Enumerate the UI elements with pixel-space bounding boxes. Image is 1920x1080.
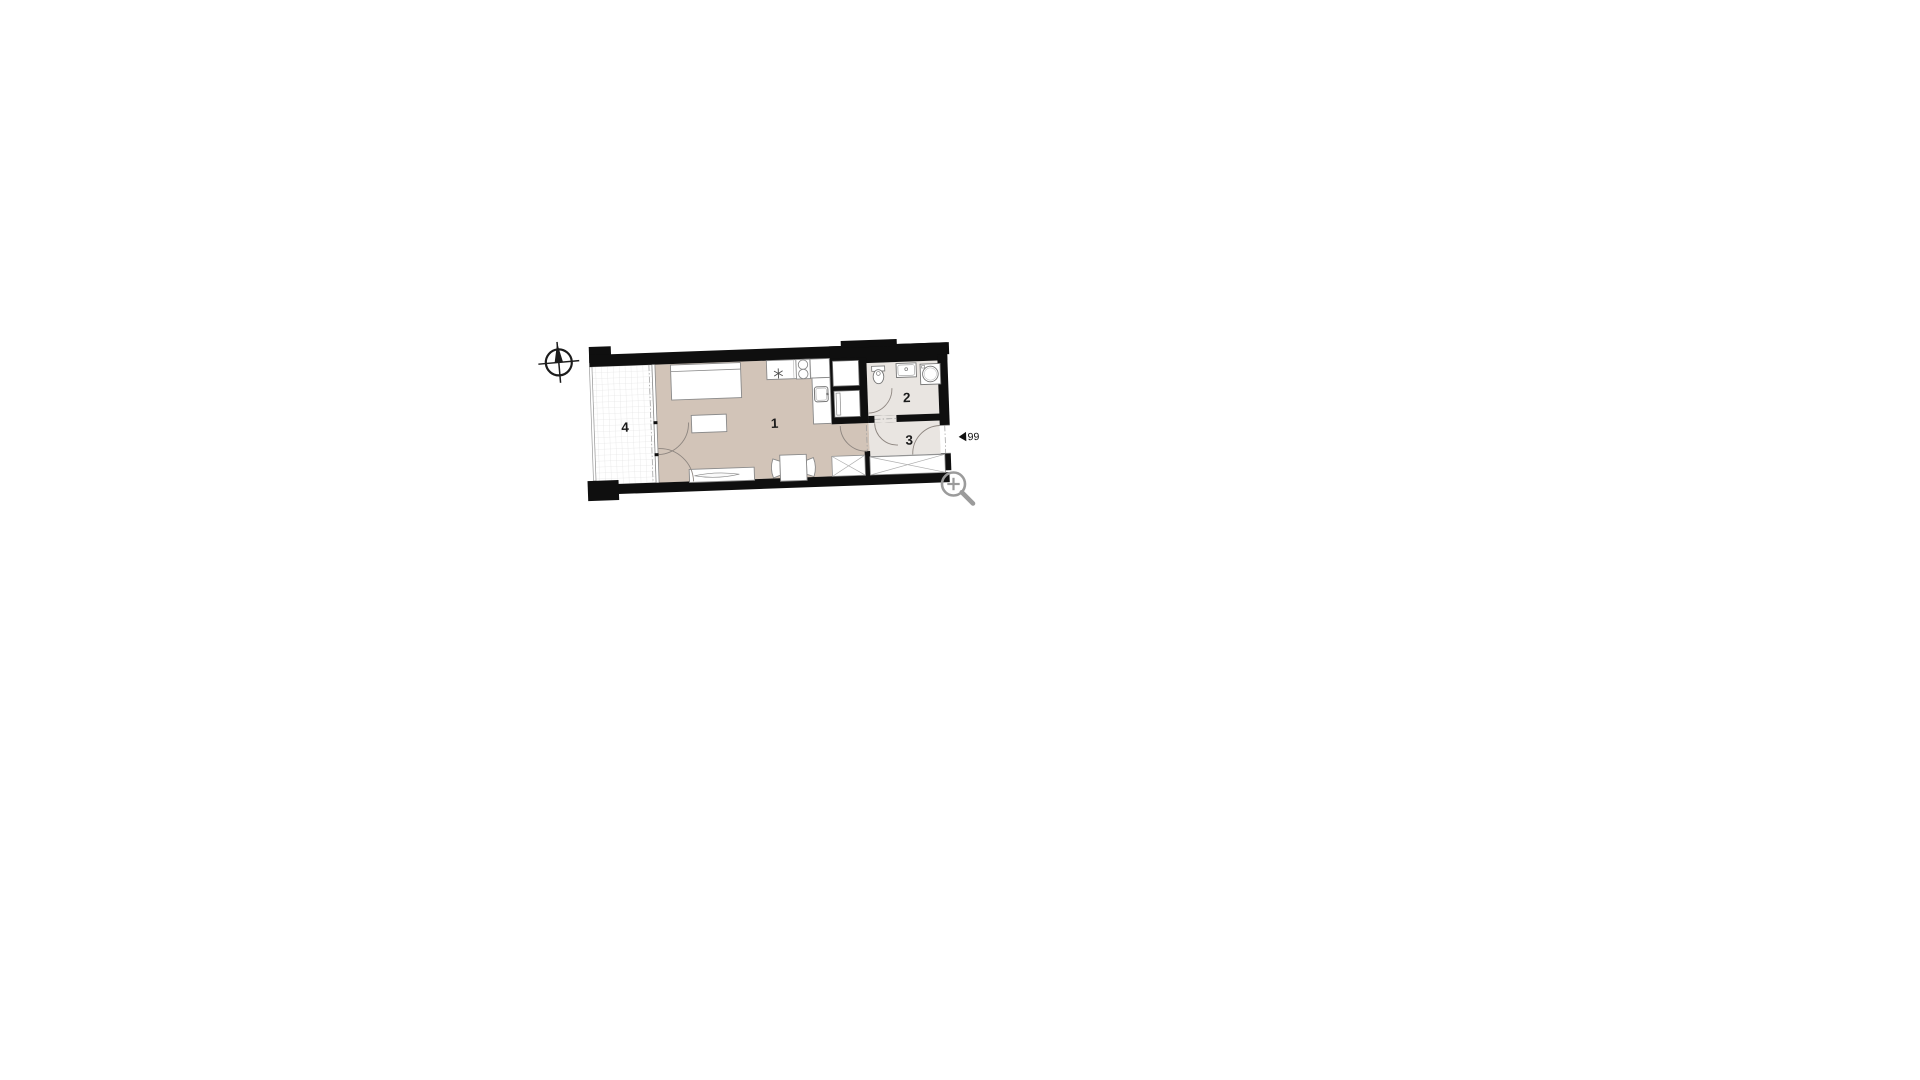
coffee-table xyxy=(691,414,727,433)
room-2-label: 2 xyxy=(903,390,911,405)
room-3-label: 3 xyxy=(905,432,914,447)
shaft-radiator xyxy=(836,393,841,415)
zoom-icon-handle xyxy=(962,492,973,503)
bed xyxy=(670,363,741,400)
shaft-box-upper xyxy=(832,360,859,386)
burner-2 xyxy=(798,369,808,379)
floor-plan-drawing: 1 2 3 4 99 xyxy=(0,0,1920,1080)
balcony-door-post-upper xyxy=(653,421,657,424)
room-1-label: 1 xyxy=(771,416,780,431)
dining-table xyxy=(780,454,807,481)
apartment-plan: 1 2 3 4 99 xyxy=(583,333,982,501)
balcony-door-post-lower xyxy=(655,453,659,456)
dining-chair-right xyxy=(806,457,815,476)
apartment-number: 99 xyxy=(967,431,979,443)
wall-bottom-left-block xyxy=(588,480,620,501)
room-4-label: 4 xyxy=(621,420,630,435)
dining-chair-left xyxy=(771,459,780,478)
entry-arrow-icon xyxy=(958,432,966,442)
burner-1 xyxy=(798,360,808,370)
compass-icon xyxy=(537,340,581,384)
floor-plan-page: 1 2 3 4 99 xyxy=(0,0,1920,1080)
